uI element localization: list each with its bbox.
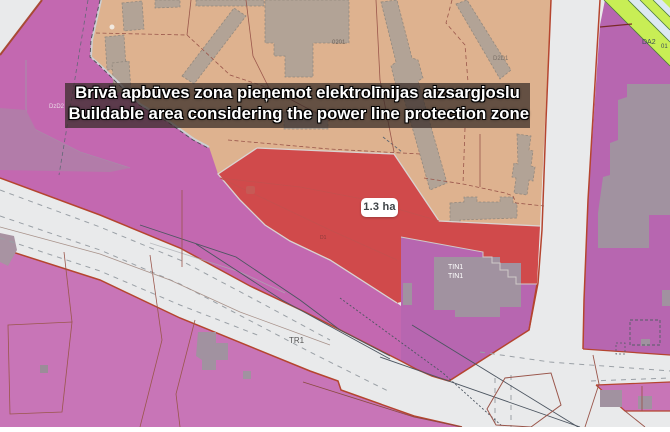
svg-text:DA2: DA2	[642, 39, 656, 46]
svg-text:01: 01	[661, 44, 668, 50]
svg-text:D2D1: D2D1	[493, 56, 509, 62]
svg-text:TR1: TR1	[289, 336, 305, 345]
svg-text:0201: 0201	[332, 40, 346, 46]
svg-text:D1: D1	[320, 235, 327, 241]
svg-text:TIN1: TIN1	[448, 273, 463, 280]
svg-text:DzD2: DzD2	[49, 104, 65, 110]
svg-text:TIN1: TIN1	[448, 264, 463, 271]
